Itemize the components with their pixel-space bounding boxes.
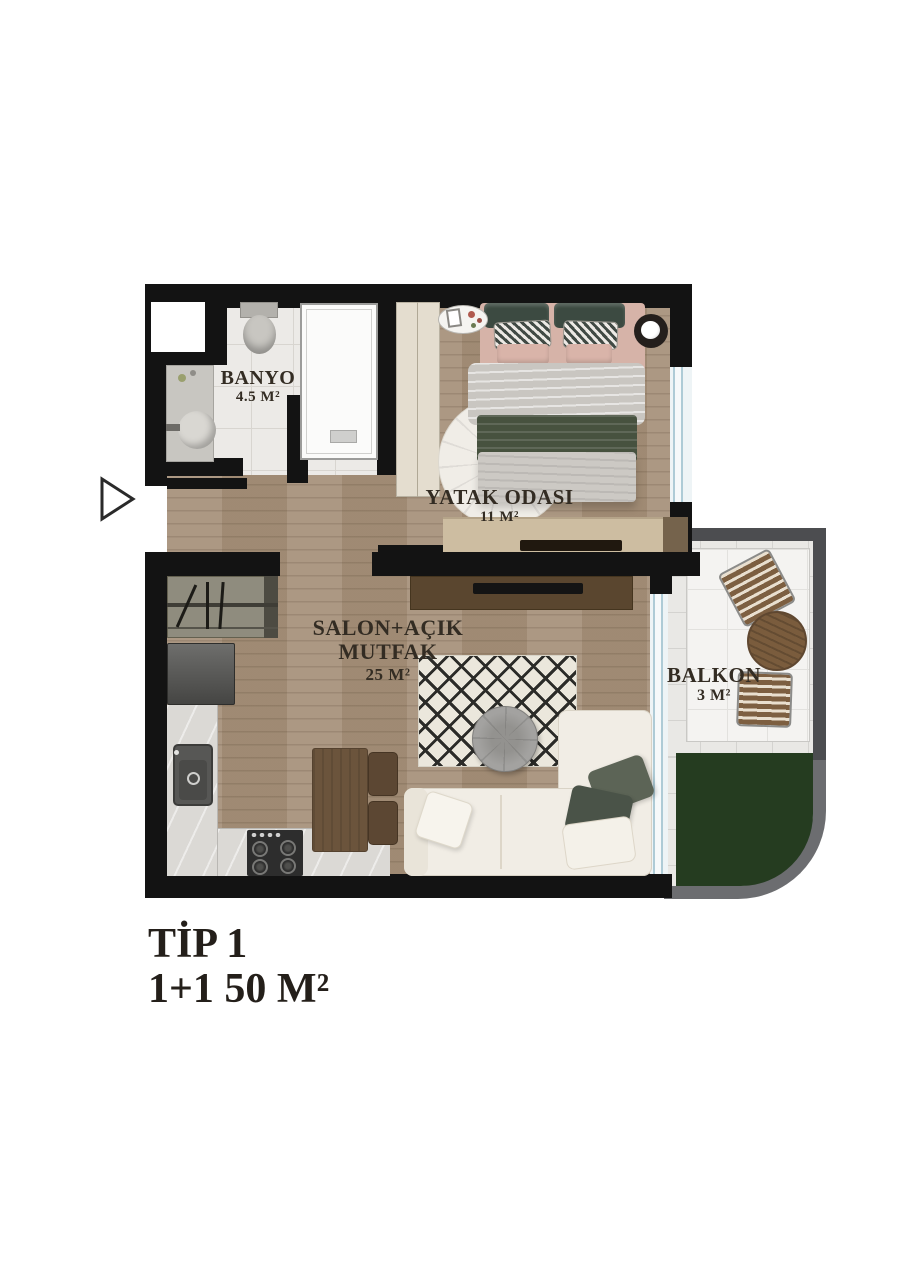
dining-chair — [368, 752, 398, 796]
plan-title: TİP 1 — [148, 922, 329, 967]
wall-mid-left — [145, 552, 280, 576]
faucet — [166, 424, 180, 431]
room-name: YATAK ODASI — [417, 486, 582, 509]
cabinet-seam — [167, 627, 278, 629]
stove-burner — [252, 841, 268, 857]
plan-subtitle: 1+1 50 M² — [148, 967, 329, 1012]
toilet-bowl — [243, 315, 276, 354]
soap-bottle — [190, 370, 196, 376]
room-name: BANYO — [208, 367, 308, 389]
wardrobe-door-line — [417, 302, 418, 497]
entrance-arrow-icon — [99, 476, 137, 522]
stove-burner — [280, 840, 296, 856]
room-area: 4.5 M² — [208, 389, 308, 406]
wall-right-upper — [670, 284, 692, 367]
sink-faucet-dot — [174, 750, 179, 755]
room-name: BALKON — [664, 664, 764, 687]
room-label-salon: SALON+AÇIK MUTFAK 25 M² — [281, 616, 495, 685]
tv — [473, 583, 583, 594]
balcony-wall-right — [813, 528, 826, 760]
room-area: 25 M² — [281, 666, 495, 685]
bedroom-window — [670, 367, 692, 502]
room-label-yatak-odasi: YATAK ODASI 11 M² — [417, 486, 582, 526]
room-label-balkon: BALKON 3 M² — [664, 664, 764, 705]
vanity-sink — [178, 411, 216, 449]
room-name: SALON+AÇIK MUTFAK — [281, 616, 495, 664]
flowers — [468, 311, 475, 318]
bathroom-door-leaf — [167, 478, 247, 489]
photo-frame — [446, 308, 462, 328]
stove-burner — [280, 858, 296, 874]
room-area: 11 M² — [417, 509, 582, 526]
bed-pillow-pink — [497, 344, 549, 364]
plan-title-block: TİP 1 1+1 50 M² — [148, 922, 329, 1013]
niche-window — [151, 302, 205, 352]
sofa-seat-seam — [500, 795, 502, 869]
fridge — [167, 643, 235, 705]
room-area: 3 M² — [664, 687, 764, 705]
dresser-handle — [520, 540, 622, 551]
salon-window — [650, 592, 668, 874]
sink-drain-ring — [187, 772, 200, 785]
wardrobe — [396, 302, 440, 497]
dining-table — [312, 748, 368, 852]
dining-chair — [368, 801, 398, 845]
shower-drain — [330, 430, 357, 443]
dresser-dark-end — [663, 517, 688, 552]
wall-bottom — [145, 874, 672, 898]
wall-mid-right — [372, 552, 700, 576]
stove-knobs — [251, 833, 281, 837]
cabinet-decor-line — [206, 582, 209, 629]
wall-left-lower — [145, 556, 167, 898]
soap-bottle — [178, 374, 186, 382]
bed-pillow-pink — [566, 344, 612, 364]
table-lamp — [641, 321, 660, 339]
room-label-banyo: BANYO 4.5 M² — [208, 367, 308, 406]
sofa-pillow-white — [561, 815, 637, 870]
balcony-table — [747, 611, 807, 671]
ottoman — [472, 706, 538, 772]
stove-burner — [252, 859, 268, 875]
floor-plan: BANYO 4.5 M² YATAK ODASI 11 M² SALON+AÇI… — [0, 0, 904, 1280]
